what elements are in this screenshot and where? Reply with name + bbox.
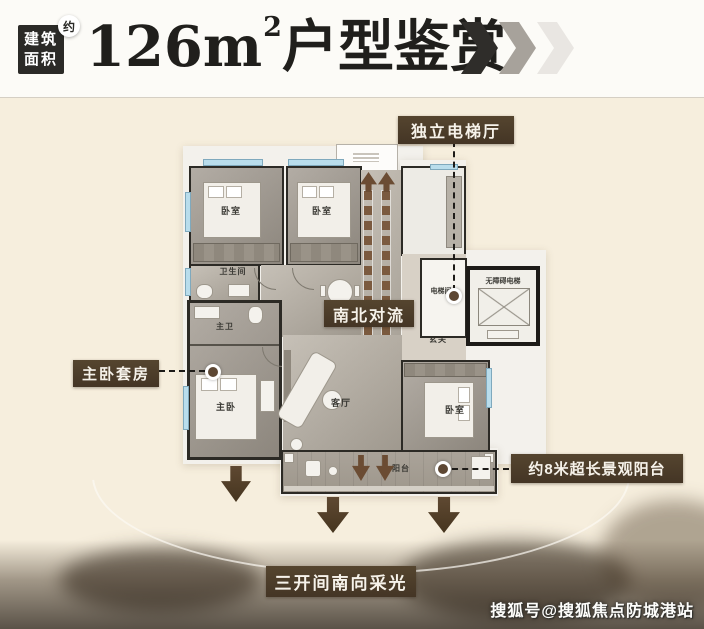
label-elevator-hall: 独立电梯厅: [398, 116, 514, 144]
window: [185, 268, 191, 296]
room-label: 主卫: [216, 321, 234, 332]
room-label: 客厅: [331, 396, 351, 409]
dining-chair: [354, 285, 360, 297]
elevator-shaft-x: [478, 288, 530, 326]
toilet: [196, 284, 213, 299]
badge-line1: 建筑: [24, 30, 58, 50]
window: [203, 159, 263, 166]
chevron-icon: [499, 22, 536, 74]
balcony-table: [328, 466, 338, 476]
page-title: 126m2户型鉴赏: [86, 8, 506, 86]
window: [288, 159, 344, 166]
room-label: 卧室: [312, 204, 332, 217]
watermark: 搜狐号@搜狐焦点防城港站: [490, 597, 694, 621]
window: [183, 386, 189, 430]
badge-line2: 面积: [24, 50, 58, 70]
vanity: [194, 306, 220, 319]
title-area-number: 126m: [86, 19, 262, 75]
window: [486, 368, 492, 408]
ac-vent-lines: [353, 153, 379, 162]
pillow: [201, 378, 218, 391]
approx-circle-badge: 约: [58, 15, 80, 37]
connector-dot: [435, 461, 451, 477]
pillow: [302, 186, 317, 198]
suite-divider-wall: [190, 344, 279, 346]
title-superscript: 2: [263, 14, 282, 41]
toilet: [248, 306, 263, 324]
room-label: 阳台: [392, 463, 410, 474]
room-label: 卧室: [445, 403, 465, 416]
room-label: 主卧: [216, 400, 236, 413]
wardrobe: [193, 243, 280, 262]
balcony-rail: [284, 486, 494, 491]
chevron-icon: [461, 22, 498, 74]
chevron-icon: [537, 22, 574, 74]
label-master-suite: 主卧套房: [73, 360, 159, 387]
balcony-corner-post: [284, 453, 294, 463]
pillow: [220, 378, 237, 391]
pillow: [458, 387, 470, 403]
room-label: 无障碍电梯: [486, 276, 521, 286]
room-kitchen: [401, 166, 466, 256]
connector-line-master-suite: [159, 370, 205, 372]
label-long-balcony: 约8米超长景观阳台: [511, 454, 683, 483]
promo-page: 建筑 面积 约 126m2户型鉴赏 卧室 卧室 卫生间: [0, 0, 704, 629]
label-convection: 南北对流: [324, 300, 414, 327]
header-band: 建筑 面积 约 126m2户型鉴赏: [0, 0, 704, 98]
pillow: [226, 186, 242, 198]
room-label: 卧室: [221, 204, 241, 217]
connector-dot: [446, 288, 462, 304]
nightstand: [260, 380, 275, 412]
title-chevrons: [461, 22, 574, 74]
label-south-lighting: 三开间南向采光: [266, 566, 416, 597]
window: [185, 192, 191, 232]
balcony-chair: [305, 460, 321, 477]
connector-line-elevator-hall: [453, 141, 455, 291]
dining-chair: [320, 285, 326, 297]
connector-dot: [205, 364, 221, 380]
pillow: [208, 186, 224, 198]
building-area-badge: 建筑 面积: [18, 25, 64, 74]
wardrobe: [290, 243, 358, 262]
elevator-door: [487, 330, 519, 339]
wardrobe: [404, 363, 487, 377]
room-label: 卫生间: [220, 266, 247, 277]
connector-line-balcony: [452, 468, 509, 470]
pillow: [319, 186, 334, 198]
sink-counter: [228, 284, 250, 297]
